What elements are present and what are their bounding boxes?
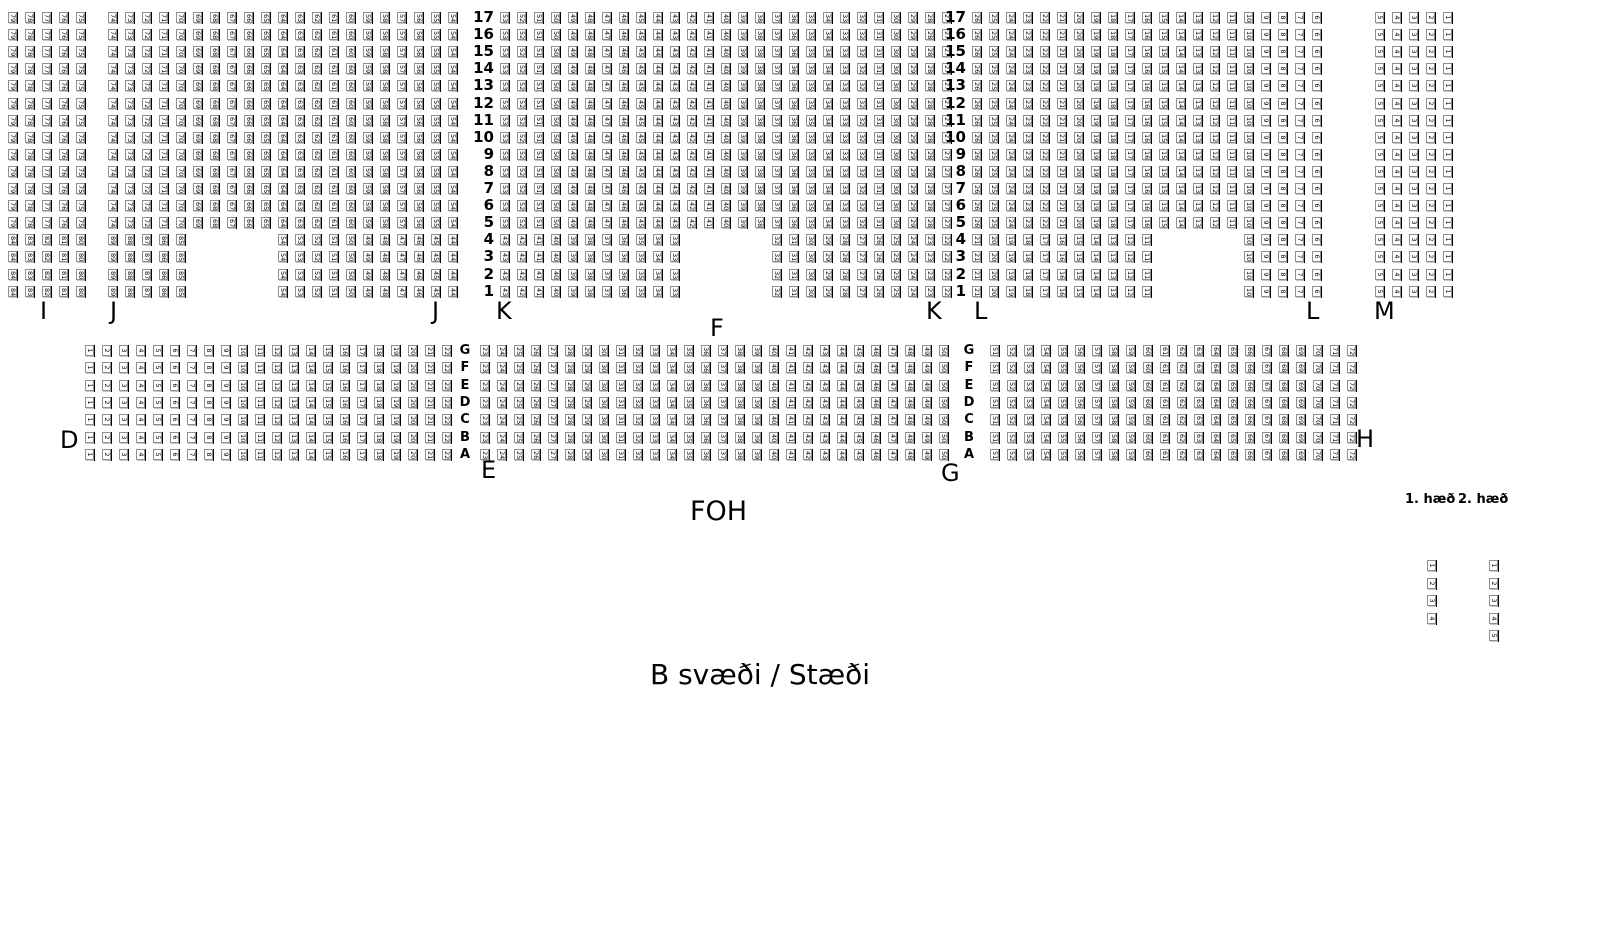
seat[interactable]: 74: [108, 12, 117, 23]
seat[interactable]: 12: [1210, 183, 1219, 194]
seat[interactable]: 12: [272, 397, 281, 408]
seat[interactable]: 10: [1244, 29, 1253, 40]
seat[interactable]: 35: [636, 286, 645, 297]
seat[interactable]: 70: [176, 98, 185, 109]
seat[interactable]: 20: [989, 286, 998, 297]
seat[interactable]: 33: [670, 269, 679, 280]
seat[interactable]: 9: [1261, 98, 1270, 109]
seat[interactable]: 21: [1057, 149, 1066, 160]
seat[interactable]: 57: [397, 63, 406, 74]
seat[interactable]: 25: [989, 12, 998, 23]
seat[interactable]: 9: [1261, 183, 1270, 194]
seat[interactable]: 57: [397, 183, 406, 194]
seat[interactable]: 6: [1312, 63, 1321, 74]
seat[interactable]: 36: [789, 80, 798, 91]
seat[interactable]: 5: [1375, 217, 1384, 228]
seat[interactable]: 33: [840, 98, 849, 109]
seat[interactable]: 31: [874, 63, 883, 74]
seat[interactable]: 59: [363, 46, 372, 57]
seat[interactable]: 21: [1057, 63, 1066, 74]
seat[interactable]: 23: [1023, 63, 1032, 74]
seat[interactable]: 26: [972, 149, 981, 160]
seat[interactable]: 8: [1278, 29, 1287, 40]
seat[interactable]: 1: [1443, 12, 1452, 23]
seat[interactable]: 32: [857, 132, 866, 143]
seat[interactable]: 51: [329, 286, 338, 297]
seat[interactable]: 57: [397, 98, 406, 109]
seat[interactable]: 19: [391, 432, 400, 443]
seat[interactable]: 6: [1312, 269, 1321, 280]
seat[interactable]: 54: [448, 149, 457, 160]
seat[interactable]: 49: [568, 115, 577, 126]
seat[interactable]: 7: [1295, 98, 1304, 109]
seat[interactable]: 1: [1443, 286, 1452, 297]
seat[interactable]: 45: [636, 63, 645, 74]
seat[interactable]: 69: [193, 149, 202, 160]
seat[interactable]: 67: [227, 29, 236, 40]
seat[interactable]: 24: [497, 449, 506, 460]
seat[interactable]: 12: [1210, 217, 1219, 228]
seat[interactable]: 58: [380, 115, 389, 126]
seat[interactable]: 75: [76, 149, 85, 160]
seat[interactable]: 41: [786, 362, 795, 373]
seat[interactable]: 69: [1296, 380, 1305, 391]
seat[interactable]: 71: [159, 29, 168, 40]
seat[interactable]: 41: [704, 166, 713, 177]
seat[interactable]: 31: [874, 80, 883, 91]
seat[interactable]: 77: [42, 46, 51, 57]
seat[interactable]: 58: [380, 63, 389, 74]
seat[interactable]: 35: [806, 183, 815, 194]
seat[interactable]: 34: [823, 46, 832, 57]
seat[interactable]: 24: [1006, 149, 1015, 160]
seat[interactable]: 36: [619, 269, 628, 280]
seat[interactable]: 7: [187, 345, 196, 356]
seat[interactable]: 42: [803, 345, 812, 356]
seat[interactable]: 3: [1489, 595, 1498, 606]
seat[interactable]: 54: [448, 217, 457, 228]
seat[interactable]: 20: [1074, 166, 1083, 177]
seat[interactable]: 71: [1330, 380, 1339, 391]
seat[interactable]: 21: [972, 234, 981, 245]
seat[interactable]: 34: [823, 98, 832, 109]
seat[interactable]: 56: [1075, 362, 1084, 373]
seat[interactable]: 38: [755, 12, 764, 23]
seat[interactable]: 18: [1108, 115, 1117, 126]
seat[interactable]: 32: [633, 449, 642, 460]
seat[interactable]: 26: [972, 63, 981, 74]
seat[interactable]: 16: [340, 414, 349, 425]
seat[interactable]: 39: [752, 432, 761, 443]
seat[interactable]: 79: [8, 149, 17, 160]
seat[interactable]: 14: [1176, 200, 1185, 211]
seat[interactable]: 57: [397, 166, 406, 177]
seat[interactable]: 37: [602, 234, 611, 245]
seat[interactable]: 10: [238, 380, 247, 391]
seat[interactable]: 29: [908, 98, 917, 109]
seat[interactable]: 39: [752, 397, 761, 408]
seat[interactable]: 78: [25, 63, 34, 74]
seat[interactable]: 76: [59, 12, 68, 23]
seat[interactable]: 2: [102, 362, 111, 373]
seat[interactable]: 60: [346, 132, 355, 143]
seat[interactable]: 42: [687, 217, 696, 228]
seat[interactable]: 8: [1278, 183, 1287, 194]
seat[interactable]: 82: [42, 269, 51, 280]
seat[interactable]: 21: [972, 251, 981, 262]
seat[interactable]: 65: [261, 115, 270, 126]
seat[interactable]: 39: [752, 345, 761, 356]
seat[interactable]: 18: [374, 397, 383, 408]
seat[interactable]: 31: [789, 286, 798, 297]
seat[interactable]: 68: [210, 183, 219, 194]
seat[interactable]: 29: [908, 46, 917, 57]
seat[interactable]: 19: [391, 414, 400, 425]
seat[interactable]: 21: [1057, 200, 1066, 211]
seat[interactable]: 40: [721, 217, 730, 228]
seat[interactable]: 69: [193, 98, 202, 109]
seat[interactable]: 68: [1279, 432, 1288, 443]
seat[interactable]: 49: [568, 29, 577, 40]
seat[interactable]: 48: [380, 286, 389, 297]
seat[interactable]: 6: [1312, 234, 1321, 245]
seat[interactable]: 55: [431, 98, 440, 109]
seat[interactable]: 10: [1244, 251, 1253, 262]
seat[interactable]: 15: [1159, 149, 1168, 160]
seat[interactable]: 32: [857, 217, 866, 228]
seat[interactable]: 29: [582, 380, 591, 391]
seat[interactable]: 37: [772, 80, 781, 91]
seat[interactable]: 13: [1193, 46, 1202, 57]
seat[interactable]: 51: [329, 251, 338, 262]
seat[interactable]: 20: [408, 380, 417, 391]
seat[interactable]: 48: [380, 251, 389, 262]
seat[interactable]: 3: [1409, 200, 1418, 211]
seat[interactable]: 46: [871, 362, 880, 373]
seat[interactable]: 12: [1210, 132, 1219, 143]
seat[interactable]: 37: [772, 12, 781, 23]
seat[interactable]: 8: [1278, 80, 1287, 91]
seat[interactable]: 75: [76, 12, 85, 23]
seat[interactable]: 43: [670, 46, 679, 57]
seat[interactable]: 28: [840, 234, 849, 245]
seat[interactable]: 56: [414, 149, 423, 160]
seat[interactable]: 12: [1125, 269, 1134, 280]
seat[interactable]: 1: [85, 414, 94, 425]
seat[interactable]: 33: [650, 432, 659, 443]
seat[interactable]: 54: [448, 80, 457, 91]
seat[interactable]: 3: [1409, 217, 1418, 228]
seat[interactable]: 61: [329, 166, 338, 177]
seat[interactable]: 12: [272, 345, 281, 356]
seat[interactable]: 80: [76, 269, 85, 280]
seat[interactable]: 66: [244, 183, 253, 194]
seat[interactable]: 60: [346, 183, 355, 194]
seat[interactable]: 19: [1091, 80, 1100, 91]
seat[interactable]: 30: [599, 397, 608, 408]
seat[interactable]: 40: [769, 397, 778, 408]
seat[interactable]: 69: [193, 29, 202, 40]
seat[interactable]: 57: [397, 80, 406, 91]
seat[interactable]: 29: [908, 166, 917, 177]
seat[interactable]: 47: [602, 115, 611, 126]
seat[interactable]: 30: [891, 29, 900, 40]
seat[interactable]: 30: [806, 234, 815, 245]
seat[interactable]: 1: [1427, 560, 1436, 571]
seat[interactable]: 73: [125, 200, 134, 211]
seat[interactable]: 13: [1193, 183, 1202, 194]
seat[interactable]: 48: [585, 183, 594, 194]
seat[interactable]: 18: [1108, 63, 1117, 74]
seat[interactable]: 62: [312, 200, 321, 211]
seat[interactable]: 60: [346, 115, 355, 126]
seat[interactable]: 27: [548, 397, 557, 408]
seat[interactable]: 54: [1041, 362, 1050, 373]
seat[interactable]: 43: [820, 449, 829, 460]
seat[interactable]: 60: [346, 200, 355, 211]
seat[interactable]: 17: [1125, 149, 1134, 160]
seat[interactable]: 52: [1007, 432, 1016, 443]
seat[interactable]: 21: [1057, 98, 1066, 109]
seat[interactable]: 28: [925, 183, 934, 194]
seat[interactable]: 38: [735, 397, 744, 408]
seat[interactable]: 13: [1193, 63, 1202, 74]
seat[interactable]: 26: [972, 98, 981, 109]
seat[interactable]: 4: [1392, 251, 1401, 262]
seat[interactable]: 58: [1109, 449, 1118, 460]
seat[interactable]: 32: [633, 397, 642, 408]
seat[interactable]: 64: [1211, 362, 1220, 373]
seat[interactable]: 2: [1426, 183, 1435, 194]
seat[interactable]: 18: [374, 380, 383, 391]
seat[interactable]: 3: [1409, 12, 1418, 23]
seat[interactable]: 52: [517, 166, 526, 177]
seat[interactable]: 20: [408, 449, 417, 460]
seat[interactable]: 38: [585, 286, 594, 297]
seat[interactable]: 69: [1296, 397, 1305, 408]
seat[interactable]: 25: [514, 449, 523, 460]
seat[interactable]: 70: [176, 46, 185, 57]
seat[interactable]: 3: [1409, 80, 1418, 91]
seat[interactable]: 30: [891, 132, 900, 143]
seat[interactable]: 78: [25, 12, 34, 23]
seat[interactable]: 4: [1392, 149, 1401, 160]
seat[interactable]: 8: [1278, 63, 1287, 74]
seat[interactable]: 50: [551, 217, 560, 228]
seat[interactable]: 9: [1261, 251, 1270, 262]
seat[interactable]: 61: [329, 63, 338, 74]
seat[interactable]: 45: [636, 12, 645, 23]
seat[interactable]: 19: [1091, 115, 1100, 126]
seat[interactable]: 52: [517, 63, 526, 74]
seat[interactable]: 43: [820, 414, 829, 425]
seat[interactable]: 68: [210, 217, 219, 228]
seat[interactable]: 10: [1244, 286, 1253, 297]
seat[interactable]: 32: [772, 234, 781, 245]
seat[interactable]: 5: [153, 397, 162, 408]
seat[interactable]: 29: [582, 449, 591, 460]
seat[interactable]: 65: [261, 183, 270, 194]
seat[interactable]: 77: [42, 149, 51, 160]
seat[interactable]: 58: [380, 200, 389, 211]
seat[interactable]: 1: [1443, 29, 1452, 40]
seat[interactable]: 35: [806, 132, 815, 143]
seat[interactable]: 25: [891, 269, 900, 280]
seat[interactable]: 72: [142, 200, 151, 211]
seat[interactable]: 71: [159, 80, 168, 91]
seat[interactable]: 24: [1006, 217, 1015, 228]
seat[interactable]: 23: [1023, 200, 1032, 211]
seat[interactable]: 48: [585, 149, 594, 160]
seat[interactable]: 75: [76, 132, 85, 143]
seat[interactable]: 52: [312, 251, 321, 262]
seat[interactable]: 50: [551, 149, 560, 160]
seat[interactable]: 63: [1194, 345, 1203, 356]
seat[interactable]: 59: [363, 29, 372, 40]
seat[interactable]: 3: [1409, 234, 1418, 245]
seat[interactable]: 84: [8, 251, 17, 262]
seat[interactable]: 5: [1375, 269, 1384, 280]
seat[interactable]: 34: [823, 63, 832, 74]
seat[interactable]: 2: [102, 397, 111, 408]
seat[interactable]: 32: [633, 380, 642, 391]
seat[interactable]: 12: [1210, 98, 1219, 109]
seat[interactable]: 50: [939, 397, 948, 408]
seat[interactable]: 52: [1007, 345, 1016, 356]
seat[interactable]: 2: [1426, 80, 1435, 91]
seat[interactable]: 18: [374, 449, 383, 460]
seat[interactable]: 10: [238, 449, 247, 460]
seat[interactable]: 33: [840, 29, 849, 40]
seat[interactable]: 19: [1091, 12, 1100, 23]
seat[interactable]: 9: [1261, 149, 1270, 160]
seat[interactable]: 28: [565, 397, 574, 408]
seat[interactable]: 77: [42, 200, 51, 211]
seat[interactable]: 63: [295, 115, 304, 126]
seat[interactable]: 44: [653, 217, 662, 228]
seat[interactable]: 21: [425, 362, 434, 373]
seat[interactable]: 34: [667, 432, 676, 443]
seat[interactable]: 5: [1375, 98, 1384, 109]
seat[interactable]: 28: [925, 132, 934, 143]
seat[interactable]: 9: [221, 345, 230, 356]
seat[interactable]: 39: [738, 80, 747, 91]
seat[interactable]: 60: [346, 98, 355, 109]
seat[interactable]: 14: [1176, 166, 1185, 177]
seat[interactable]: 31: [874, 132, 883, 143]
seat[interactable]: 62: [1177, 362, 1186, 373]
seat[interactable]: 65: [261, 217, 270, 228]
seat[interactable]: 52: [1007, 449, 1016, 460]
seat[interactable]: 7: [1295, 200, 1304, 211]
seat[interactable]: 59: [363, 132, 372, 143]
seat[interactable]: 65: [261, 132, 270, 143]
seat[interactable]: 43: [670, 217, 679, 228]
seat[interactable]: 43: [500, 234, 509, 245]
seat[interactable]: 27: [857, 286, 866, 297]
seat[interactable]: 2: [1426, 217, 1435, 228]
seat[interactable]: 68: [210, 200, 219, 211]
seat[interactable]: 66: [244, 200, 253, 211]
seat[interactable]: 28: [925, 166, 934, 177]
seat[interactable]: 50: [551, 98, 560, 109]
seat[interactable]: 20: [1074, 29, 1083, 40]
seat[interactable]: 14: [1091, 269, 1100, 280]
seat[interactable]: 51: [534, 46, 543, 57]
seat[interactable]: 37: [718, 345, 727, 356]
seat[interactable]: 57: [397, 29, 406, 40]
seat[interactable]: 36: [619, 251, 628, 262]
seat[interactable]: 13: [1193, 149, 1202, 160]
seat[interactable]: 69: [193, 115, 202, 126]
seat[interactable]: 57: [1092, 362, 1101, 373]
seat[interactable]: 29: [582, 345, 591, 356]
seat[interactable]: 40: [769, 345, 778, 356]
seat[interactable]: 61: [329, 149, 338, 160]
seat[interactable]: 20: [1074, 98, 1083, 109]
seat[interactable]: 32: [857, 63, 866, 74]
seat[interactable]: 5: [1375, 251, 1384, 262]
seat[interactable]: 13: [1193, 98, 1202, 109]
seat[interactable]: 5: [1375, 12, 1384, 23]
seat[interactable]: 32: [633, 432, 642, 443]
seat[interactable]: 47: [888, 397, 897, 408]
seat[interactable]: 12: [1210, 115, 1219, 126]
seat[interactable]: 17: [357, 397, 366, 408]
seat[interactable]: 11: [1227, 12, 1236, 23]
seat[interactable]: 61: [1160, 449, 1169, 460]
seat[interactable]: 71: [159, 149, 168, 160]
seat[interactable]: 37: [772, 132, 781, 143]
seat[interactable]: 22: [1040, 29, 1049, 40]
seat[interactable]: 20: [1074, 46, 1083, 57]
seat[interactable]: 29: [823, 251, 832, 262]
seat[interactable]: 58: [1109, 432, 1118, 443]
seat[interactable]: 89: [108, 269, 117, 280]
seat[interactable]: 9: [1261, 115, 1270, 126]
seat[interactable]: 51: [990, 397, 999, 408]
seat[interactable]: 40: [721, 98, 730, 109]
seat[interactable]: 26: [874, 251, 883, 262]
seat[interactable]: 30: [891, 183, 900, 194]
seat[interactable]: 45: [636, 46, 645, 57]
seat[interactable]: 42: [687, 132, 696, 143]
seat[interactable]: 32: [857, 183, 866, 194]
seat[interactable]: 18: [1108, 12, 1117, 23]
seat[interactable]: 55: [431, 115, 440, 126]
seat[interactable]: 50: [939, 414, 948, 425]
seat[interactable]: 55: [431, 217, 440, 228]
seat[interactable]: 52: [517, 12, 526, 23]
seat[interactable]: 78: [25, 217, 34, 228]
seat[interactable]: 46: [619, 166, 628, 177]
seat[interactable]: 3: [119, 362, 128, 373]
seat[interactable]: 11: [1227, 183, 1236, 194]
seat[interactable]: 71: [1330, 397, 1339, 408]
seat[interactable]: 19: [1006, 269, 1015, 280]
seat[interactable]: 7: [187, 380, 196, 391]
seat[interactable]: 74: [108, 149, 117, 160]
seat[interactable]: 23: [1023, 80, 1032, 91]
seat[interactable]: 52: [517, 29, 526, 40]
seat[interactable]: 47: [602, 132, 611, 143]
seat[interactable]: 41: [704, 12, 713, 23]
seat[interactable]: 6: [1312, 149, 1321, 160]
seat[interactable]: 82: [42, 251, 51, 262]
seat[interactable]: 57: [397, 12, 406, 23]
seat[interactable]: 53: [500, 46, 509, 57]
seat[interactable]: 41: [786, 414, 795, 425]
